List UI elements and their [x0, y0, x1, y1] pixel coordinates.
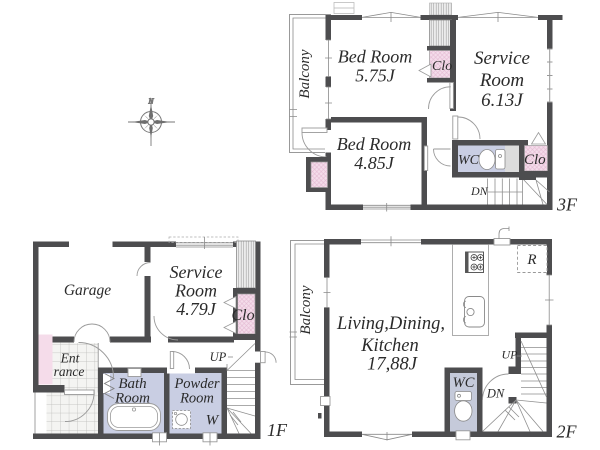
- svg-text:W: W: [206, 413, 220, 429]
- svg-text:Balcony: Balcony: [297, 49, 313, 98]
- svg-text:Clo: Clo: [524, 152, 546, 168]
- svg-text:Balcony: Balcony: [298, 285, 314, 334]
- svg-text:17,88J: 17,88J: [367, 355, 418, 375]
- svg-text:Room: Room: [179, 391, 214, 407]
- svg-text:6.13J: 6.13J: [481, 90, 524, 111]
- svg-text:Bed Room: Bed Room: [337, 134, 411, 154]
- svg-text:Garage: Garage: [64, 282, 111, 299]
- svg-text:Bed Room: Bed Room: [338, 47, 412, 67]
- svg-text:N: N: [147, 97, 154, 106]
- svg-text:DN: DN: [486, 387, 505, 401]
- svg-text:Room: Room: [114, 391, 150, 407]
- svg-text:Service: Service: [474, 48, 530, 69]
- svg-text:3F: 3F: [556, 195, 578, 215]
- svg-text:Room: Room: [174, 281, 217, 301]
- svg-text:WC: WC: [458, 153, 480, 168]
- svg-text:Kitchen: Kitchen: [360, 336, 419, 356]
- svg-text:2F: 2F: [557, 422, 578, 442]
- svg-text:Service: Service: [170, 262, 223, 282]
- svg-text:DN: DN: [470, 184, 489, 198]
- svg-text:UP: UP: [502, 348, 519, 362]
- svg-text:4.85J: 4.85J: [354, 153, 395, 173]
- svg-text:rance: rance: [54, 364, 85, 379]
- svg-text:UP: UP: [210, 350, 227, 364]
- svg-text:WC: WC: [453, 375, 475, 391]
- svg-text:Clo: Clo: [432, 59, 452, 74]
- svg-text:5.75J: 5.75J: [355, 66, 396, 86]
- svg-text:Room: Room: [479, 70, 524, 91]
- svg-text:R: R: [526, 252, 536, 268]
- svg-text:1F: 1F: [267, 420, 288, 440]
- svg-text:4.79J: 4.79J: [176, 299, 217, 319]
- svg-text:Living,Dining,: Living,Dining,: [336, 314, 445, 334]
- svg-text:Clo: Clo: [232, 307, 255, 324]
